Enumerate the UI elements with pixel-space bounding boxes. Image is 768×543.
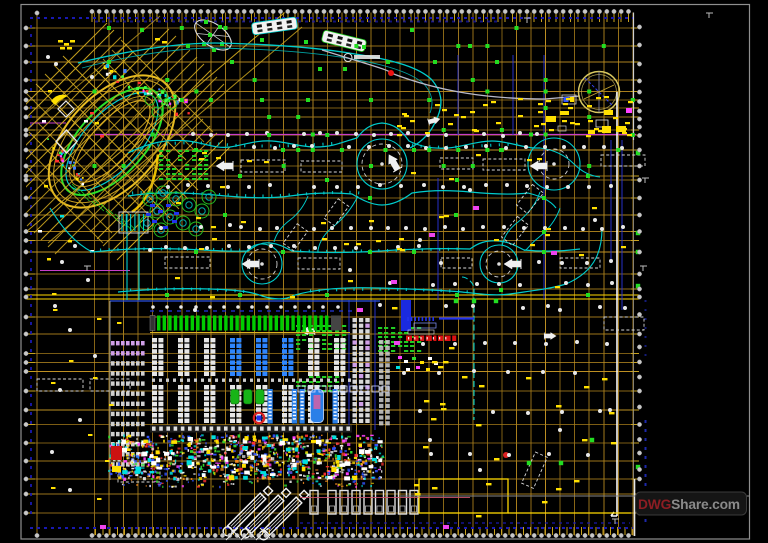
svg-text:DWGShare.com: DWGShare.com	[638, 497, 740, 512]
